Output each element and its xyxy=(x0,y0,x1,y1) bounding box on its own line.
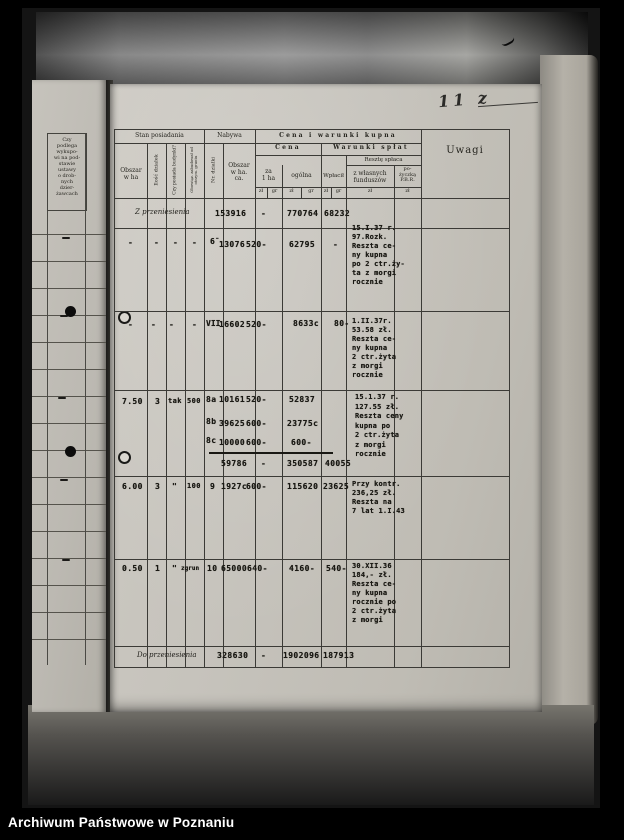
grid-line xyxy=(282,165,283,667)
cell-obszar: 16602 xyxy=(219,320,245,329)
cell-za-1-ha: 600- xyxy=(246,419,267,428)
cell-uwagi: 1.II.37r. 53.58 zł. Reszta ce- ny kupna … xyxy=(352,317,437,380)
grid-line xyxy=(346,155,347,667)
cell-wplacil: - xyxy=(333,240,338,249)
cell: - xyxy=(128,238,133,247)
cell-obszar: 65000 xyxy=(221,564,247,573)
cell-wplacil: 80- xyxy=(334,319,350,328)
unit-zl: zł xyxy=(255,188,267,194)
cell-wplacil: 540- xyxy=(326,564,347,573)
left-page-column-line xyxy=(47,133,48,665)
grid-line xyxy=(115,198,509,199)
cell: 7.50 xyxy=(122,397,143,406)
header-za-1-ha: za 1 ha xyxy=(255,169,282,182)
archive-caption: Archiwum Państwowe w Poznaniu xyxy=(8,815,234,830)
cell-ogolna: 8633c xyxy=(293,319,319,328)
cell-uwagi: 15.1.37 r. 127.55 zł. Reszta ceny kupna … xyxy=(355,393,440,460)
grid-line xyxy=(147,143,148,667)
cell-sum-ogolna: 350587 xyxy=(287,459,318,468)
header-ogolna: ogólna xyxy=(282,173,321,180)
grid-line xyxy=(115,646,509,647)
cell: - xyxy=(173,238,178,247)
cell: 0.50 xyxy=(122,564,143,573)
cell-ogolna: 23775c xyxy=(287,419,318,428)
cell: 100 xyxy=(187,482,201,490)
film-top-strip xyxy=(36,12,588,90)
cell-obszar: 13076 xyxy=(219,240,245,249)
cell: - xyxy=(128,320,133,329)
unit-zl: zł xyxy=(394,188,421,194)
archive-scan-viewer: Czy podlega wykupo- wi na pod- stawie us… xyxy=(0,0,624,840)
cell-za-1-ha: 520- xyxy=(246,395,267,404)
cell-za-1-ha: - xyxy=(261,651,266,660)
cell-ogolna: 770764 xyxy=(287,209,318,218)
cell-ogolna: 4160- xyxy=(289,564,315,573)
grid-line xyxy=(115,559,509,560)
unit-zl: zł xyxy=(282,188,301,194)
left-page-dash xyxy=(62,559,70,561)
grid-line xyxy=(185,143,186,667)
cell-uwagi: Przy kontr. 236,25 zł. Reszta na 7 lat 1… xyxy=(352,480,440,516)
cell-nr-dzialki: 9 xyxy=(210,482,215,491)
cell-za-1-ha: 520- xyxy=(246,320,267,329)
table-surface-below xyxy=(28,705,594,805)
cell: - xyxy=(154,238,159,247)
cell-sum-obszar: 59786 xyxy=(221,459,247,468)
header-z-wlasnych-funduszow: z własnych funduszów xyxy=(346,171,394,184)
grid-line xyxy=(223,143,224,667)
cell-obszar: 1927c xyxy=(221,482,247,491)
punch-dot xyxy=(65,446,76,457)
page-stack-edge xyxy=(540,55,598,725)
left-page-dash xyxy=(58,397,66,399)
cell: zgrun xyxy=(181,565,199,572)
row-label: Do przeniesienia xyxy=(137,651,197,659)
cell-nr-dzialki: 8a xyxy=(206,395,216,404)
header-pozyczka-pbr: po- życzką P.B.R. xyxy=(394,167,421,184)
unit-zl: zł xyxy=(346,188,394,194)
header-stan-posiadania: Stan posiadania xyxy=(115,133,204,140)
left-page-header-cell: Czy podlega wykupo- wi na pod- stawie us… xyxy=(47,133,87,211)
grid-line xyxy=(166,143,167,667)
cell: " xyxy=(172,482,177,491)
unit-zl: zł xyxy=(321,188,331,194)
grid-line xyxy=(321,143,322,667)
punch-dot xyxy=(65,306,76,317)
header-cena-i-warunki-kupna: Cena i warunki kupna xyxy=(255,133,421,140)
header-czy-posiada-budynki: Czy posiada budynki? xyxy=(171,143,181,198)
subtotal-rule xyxy=(209,452,333,454)
header-warunki-splat: Warunki spłat xyxy=(321,145,421,152)
grid-line xyxy=(115,311,509,312)
cell: 6.00 xyxy=(122,482,143,491)
cell-obszar: 153916 xyxy=(215,209,246,218)
header-uwagi: Uwagi xyxy=(421,148,509,155)
cell-sum-za: - xyxy=(261,459,266,468)
cell: - xyxy=(192,238,197,247)
cell: tak xyxy=(168,397,182,405)
ledger-table: Stan posiadania Nabywa Cena i warunki ku… xyxy=(114,129,510,668)
cell-za-1-ha: 640- xyxy=(247,564,268,573)
cell-obszar: 10000 xyxy=(219,438,245,447)
cell-nr-dzialki: 6̄ xyxy=(210,237,215,246)
previous-page-edge: Czy podlega wykupo- wi na pod- stawie us… xyxy=(32,80,106,712)
header-obszar-w-ha: Obszar w ha xyxy=(115,168,147,181)
header-obowiazek-zabudowy: Obowiąz. zabudował od otrzym. gruntu xyxy=(187,143,201,197)
left-page-dash xyxy=(62,237,70,239)
cell: - xyxy=(169,320,174,329)
cell: 3 xyxy=(155,482,160,491)
header-reszte-splaca: Resztę spłaca xyxy=(346,157,421,164)
unit-gr: gr xyxy=(331,188,346,194)
cell: - xyxy=(192,320,197,329)
cell-wplacil: 187913 xyxy=(323,651,354,660)
unit-gr: gr xyxy=(267,188,282,194)
left-page-dash xyxy=(60,479,68,481)
cell-za-1-ha: 520- xyxy=(246,240,267,249)
cell-nr-dzialki: 10 xyxy=(207,564,217,573)
header-nabywa: Nabywa xyxy=(204,133,255,140)
cell-nr-dzialki: 8b xyxy=(206,417,216,426)
cell-obszar: 39625 xyxy=(219,419,245,428)
cell-za-1-ha: 600- xyxy=(246,438,267,447)
grid-line xyxy=(115,228,509,229)
cell: " xyxy=(172,564,177,573)
header-ilosc-dzialek: Ilość działek xyxy=(152,143,162,198)
cell-uwagi: 15.I.37 r. 97.Rozk. Reszta ce- ny kupna … xyxy=(352,224,437,287)
grid-line xyxy=(115,476,509,477)
cell: - xyxy=(151,320,156,329)
document-page: 11 z xyxy=(110,84,542,712)
row-label: Z przeniesienia xyxy=(135,208,190,216)
cell-sum-wplacil: 40055 xyxy=(325,459,351,468)
header-wplacil: Wpłacił xyxy=(321,173,346,180)
cell-uwagi: 30.XII.36 184,- zł. Reszta ce- ny kupna … xyxy=(352,562,440,625)
cell-obszar: 328630 xyxy=(217,651,248,660)
header-obszar-w-ha-ca: Obszar w ha. ca. xyxy=(223,163,255,183)
cell-wplacil: 68232 xyxy=(324,209,350,218)
cell-ogolna: 52837 xyxy=(289,395,315,404)
grid-line xyxy=(204,130,205,667)
handwritten-page-number: 11 z xyxy=(437,88,491,112)
left-page-row-lines xyxy=(32,208,106,665)
cell-nr-dzialki: 8c xyxy=(206,436,216,445)
cell: 500 xyxy=(187,397,201,405)
left-page-column-header: Czy podlega wykupo- wi na pod- stawie us… xyxy=(49,137,85,197)
cell-wplacil: 23625 xyxy=(323,482,349,491)
header-nr-dzialki: Nr. działki xyxy=(209,143,219,198)
unit-gr: gr xyxy=(301,188,321,194)
cell-ogolna: 115620 xyxy=(287,482,318,491)
cell: 3 xyxy=(155,397,160,406)
grid-line xyxy=(255,155,421,156)
cell-obszar: 10161 xyxy=(219,395,245,404)
left-page-column-line xyxy=(85,133,86,665)
cell: 1 xyxy=(155,564,160,573)
cell-ogolna: 62795 xyxy=(289,240,315,249)
cell-za-1-ha: 600- xyxy=(246,482,267,491)
cell-ogolna: 600- xyxy=(291,438,312,447)
cell-ogolna: 1902096 xyxy=(283,651,320,660)
header-cena: Cena xyxy=(255,145,321,152)
cell-za-1-ha: - xyxy=(261,209,266,218)
grid-line xyxy=(115,390,509,391)
